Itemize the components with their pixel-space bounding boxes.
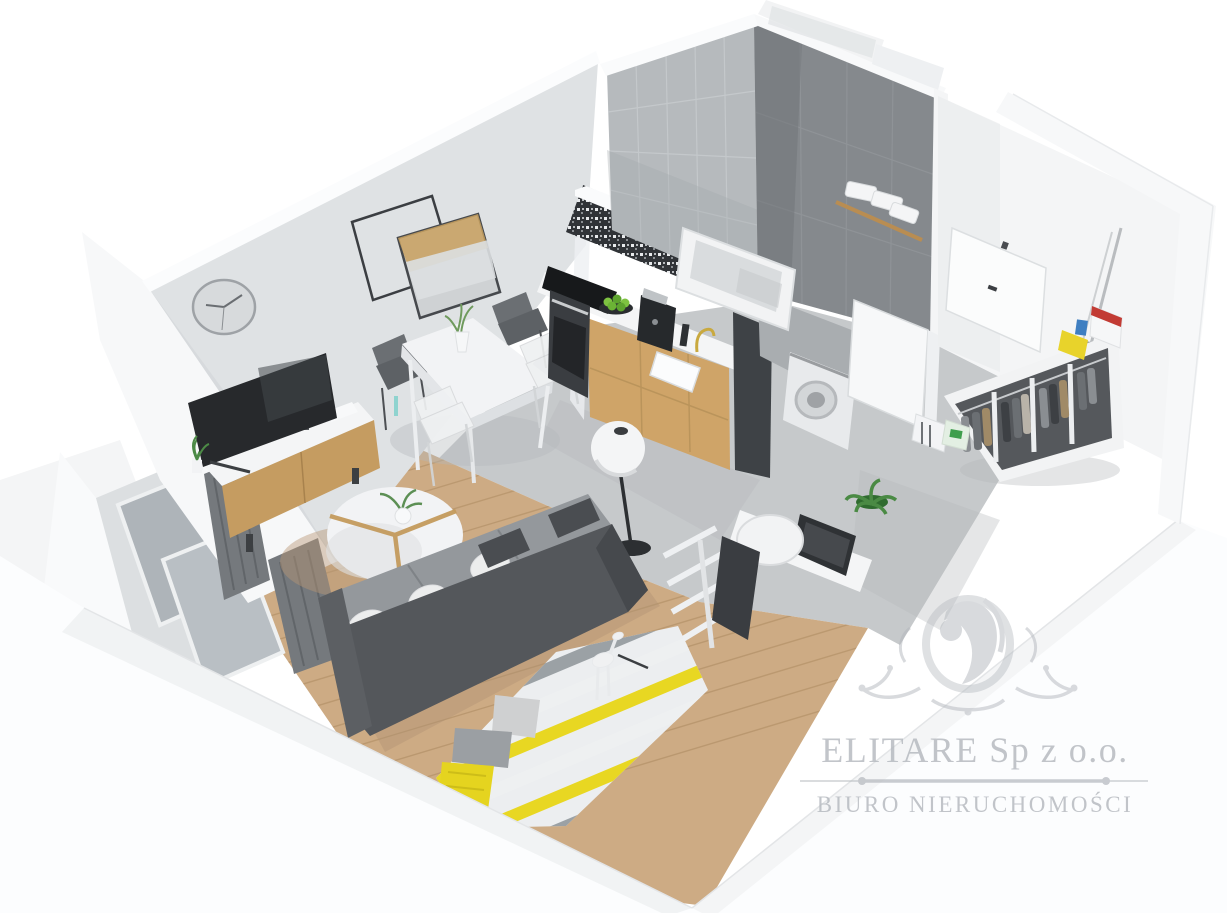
cable bbox=[394, 396, 398, 416]
floorplan-scene: ELITARE Sp z o.o. BIURO NIERUCHOMOŚCI bbox=[0, 0, 1227, 913]
blue-box bbox=[1075, 319, 1088, 335]
apartment-render: ELITARE Sp z o.o. BIURO NIERUCHOMOŚCI bbox=[0, 0, 1227, 913]
wall-clock bbox=[193, 280, 255, 334]
cushion-gray bbox=[452, 728, 512, 768]
watermark-tagline: BIURO NIERUCHOMOŚCI bbox=[817, 791, 1134, 817]
watermark-brand: ELITARE Sp z o.o. bbox=[821, 730, 1129, 770]
